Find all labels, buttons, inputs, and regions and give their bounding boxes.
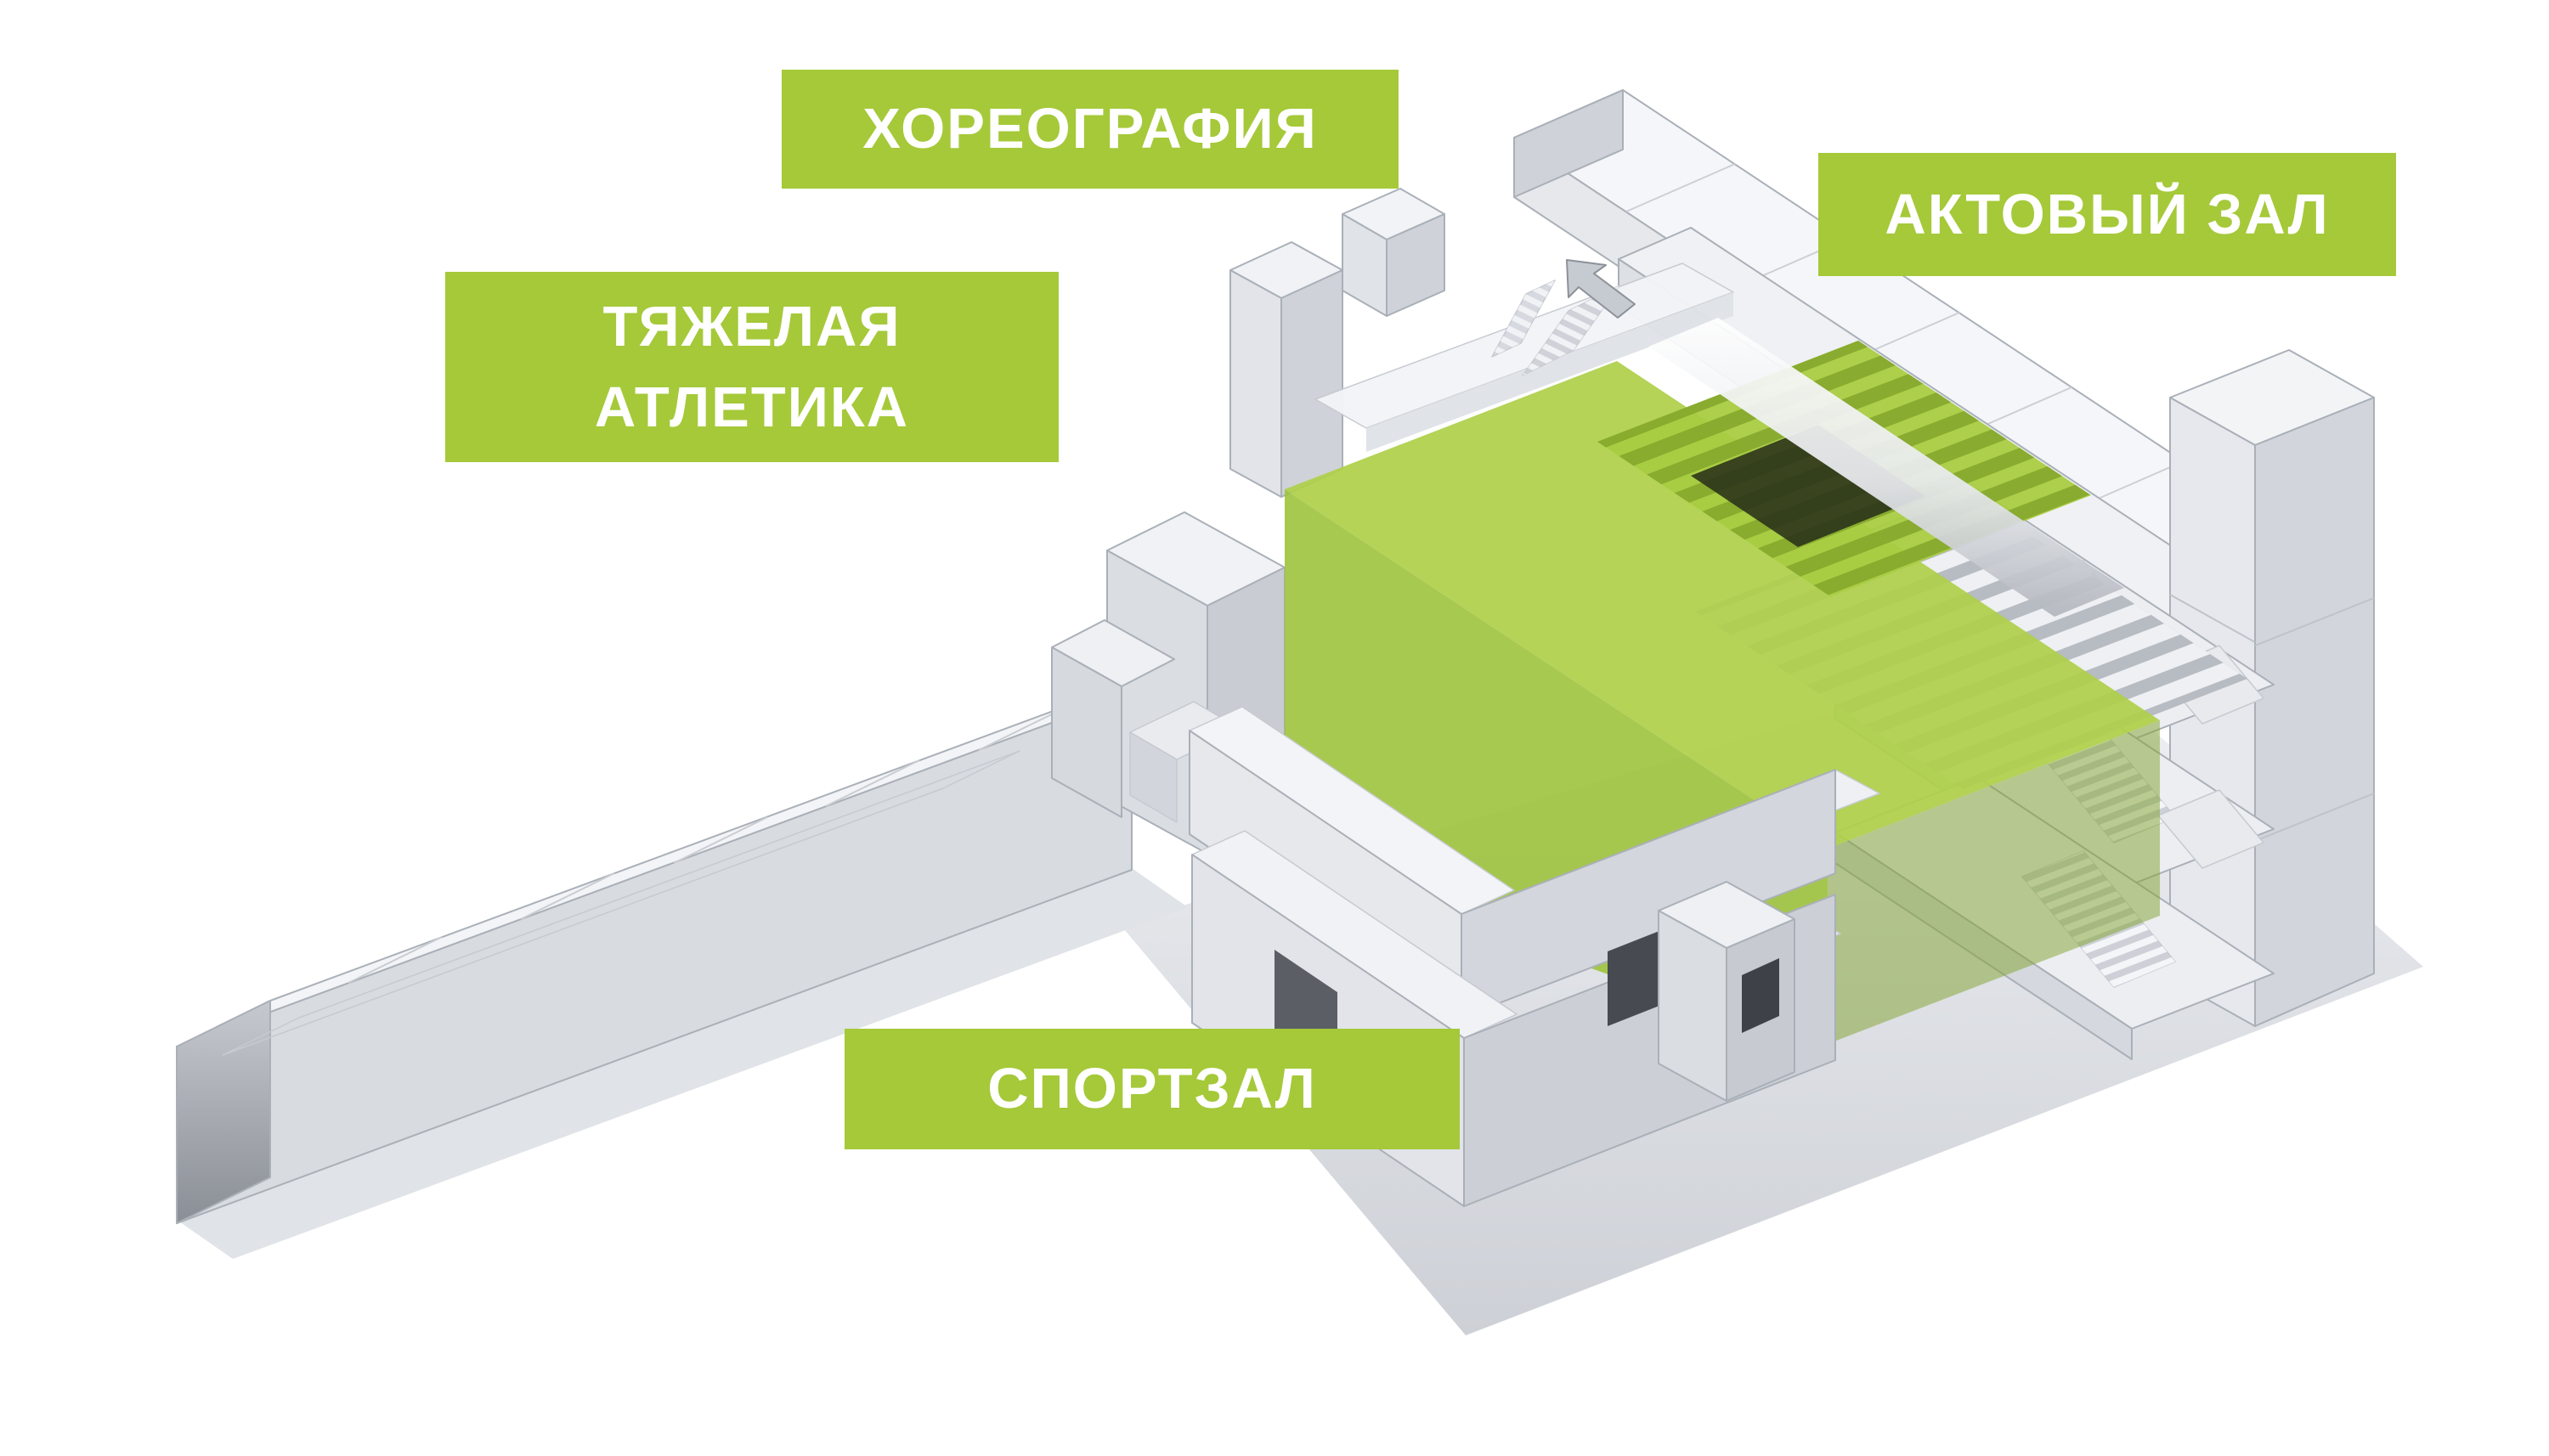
- label-assembly-hall-text: АКТОВЫЙ ЗАЛ: [1885, 174, 2329, 255]
- label-weightlifting: ТЯЖЕЛАЯ АТЛЕТИКА: [445, 272, 1059, 462]
- label-gym-text: СПОРТЗАЛ: [987, 1048, 1317, 1129]
- label-choreography-text: ХОРЕОГРАФИЯ: [862, 88, 1318, 169]
- label-choreography: ХОРЕОГРАФИЯ: [782, 70, 1399, 189]
- label-weightlifting-line2: АТЛЕТИКА: [595, 367, 909, 448]
- label-gym: СПОРТЗАЛ: [845, 1029, 1460, 1149]
- label-weightlifting-line1: ТЯЖЕЛАЯ: [603, 286, 901, 367]
- vent-tower: [1659, 882, 1794, 1101]
- label-assembly-hall: АКТОВЫЙ ЗАЛ: [1818, 153, 2396, 276]
- infographic-canvas: ХОРЕОГРАФИЯ ТЯЖЕЛАЯ АТЛЕТИКА АКТОВЫЙ ЗАЛ…: [0, 0, 2549, 1456]
